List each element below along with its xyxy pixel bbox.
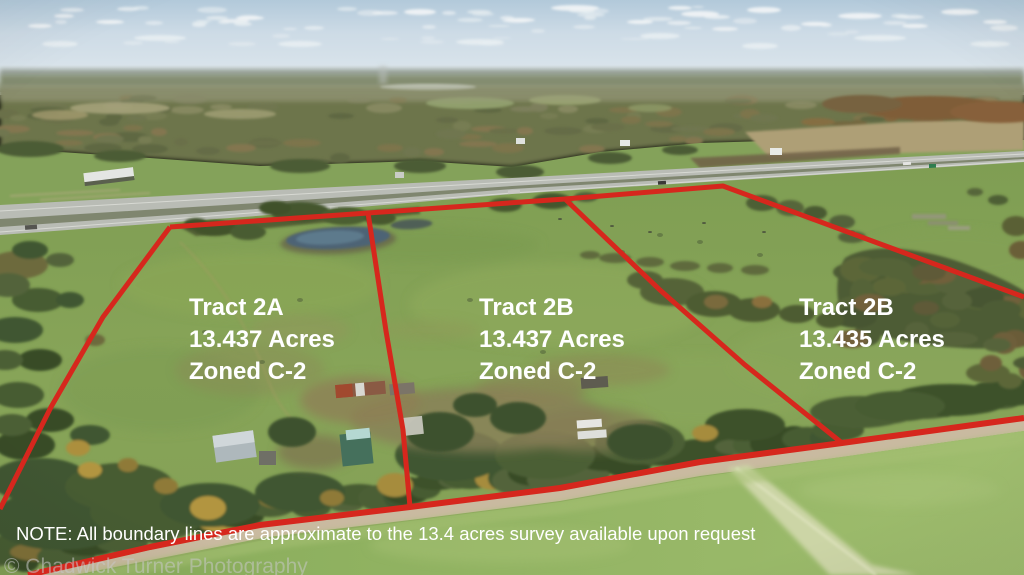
svg-text:13.437 Acres: 13.437 Acres [479, 326, 625, 353]
svg-text:NOTE: All boundary lines are a: NOTE: All boundary lines are approximate… [16, 523, 755, 544]
svg-text:13.435 Acres: 13.435 Acres [799, 326, 945, 353]
svg-text:Tract 2B: Tract 2B [479, 294, 574, 321]
svg-text:Zoned C-2: Zoned C-2 [189, 358, 306, 385]
svg-text:13.437 Acres: 13.437 Acres [189, 326, 335, 353]
svg-text:Zoned C-2: Zoned C-2 [799, 358, 916, 385]
svg-text:Tract 2B: Tract 2B [799, 294, 894, 321]
svg-text:Zoned C-2: Zoned C-2 [479, 358, 596, 385]
svg-text:© Chadwick Turner Photography: © Chadwick Turner Photography [4, 555, 308, 575]
svg-text:Tract 2A: Tract 2A [189, 294, 284, 321]
